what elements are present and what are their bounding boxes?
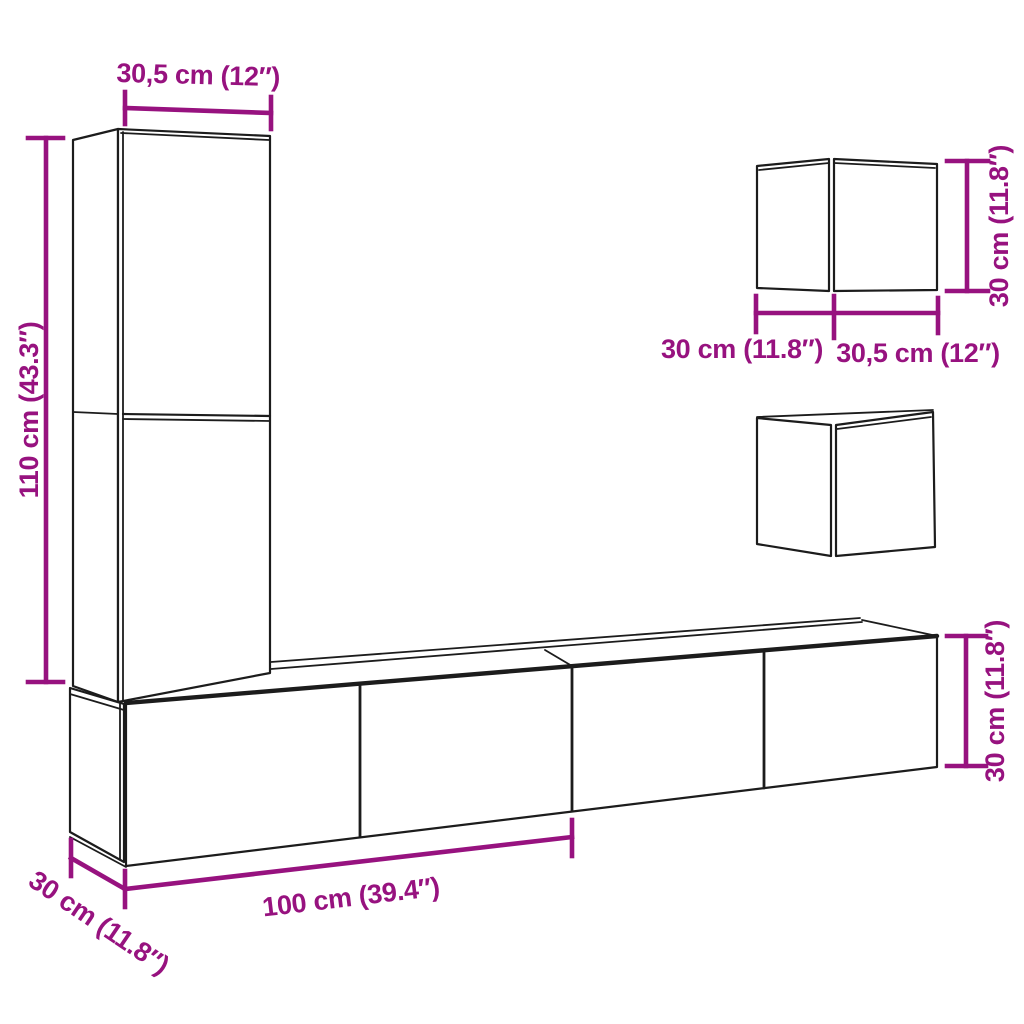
dimension-tall-cabinet-height: 110 cm (43.3″): [14, 138, 63, 682]
dim-label-cube-height: 30 cm (11.8″): [984, 145, 1014, 307]
tall-cabinet-side-panel: [73, 129, 118, 702]
wall-cube-top-front-panel: [834, 159, 937, 291]
dim-label-cube-width: 30,5 cm (12″): [836, 338, 1000, 368]
dimension-line: [125, 108, 271, 113]
wall-cube-middle-side-panel: [757, 418, 831, 556]
wall-cube-top-side-panel: [757, 159, 829, 291]
bench-top-unit-seam: [545, 650, 572, 666]
dim-label-tall-cabinet-width: 30,5 cm (12″): [116, 58, 280, 92]
dim-label-tall-cabinet-height: 110 cm (43.3″): [14, 322, 44, 499]
diagram-canvas: 30,5 cm (12″) 110 cm (43.3″) 30 cm (11.8…: [0, 0, 1024, 1024]
dimension-cube-height: 30 cm (11.8″): [947, 145, 1014, 307]
dimension-bench-height: 30 cm (11.8″): [947, 620, 1010, 782]
tall-cabinet: [73, 129, 270, 702]
bench-top-right-depth-edge: [862, 620, 937, 636]
wall-cube-top: [757, 159, 937, 291]
bench-left-panel: [70, 688, 126, 867]
bench-left-panel-face: [70, 688, 124, 862]
dim-label-bench-height: 30 cm (11.8″): [980, 620, 1010, 782]
wall-cube-middle: [757, 410, 935, 556]
dim-label-bench-depth: 30 cm (11.8″): [23, 865, 174, 981]
dim-label-bench-width: 100 cm (39.4″): [261, 872, 442, 923]
dim-label-cube-depth: 30 cm (11.8″): [661, 334, 823, 364]
wall-cube-middle-front-panel: [836, 412, 935, 556]
dimension-tall-cabinet-width: 30,5 cm (12″): [116, 58, 280, 129]
dimension-cube-bottom: 30 cm (11.8″) 30,5 cm (12″): [661, 296, 1000, 368]
product-dimension-diagram: 30,5 cm (12″) 110 cm (43.3″) 30 cm (11.8…: [0, 0, 1024, 1024]
